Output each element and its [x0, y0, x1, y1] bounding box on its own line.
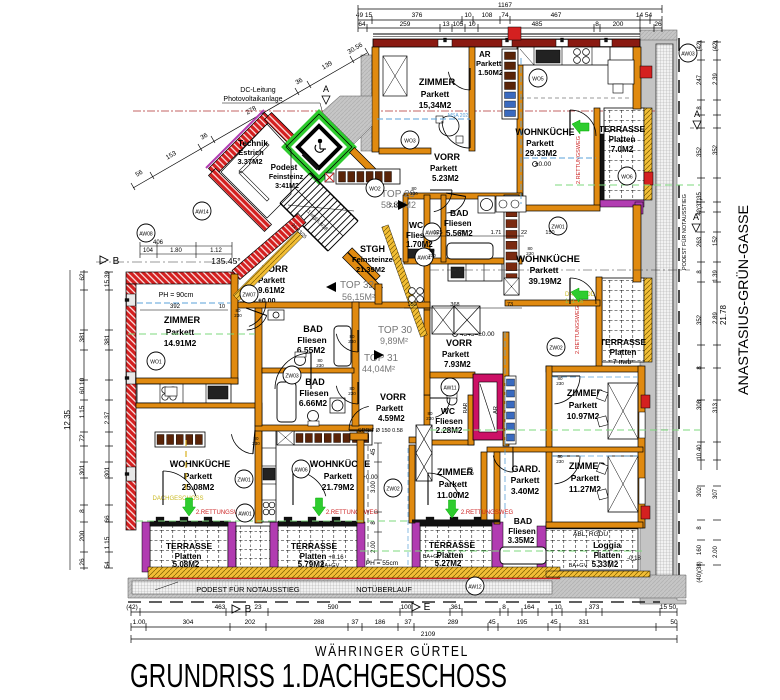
svg-text:TOP 30: TOP 30 [378, 325, 413, 336]
svg-text:Fliesen: Fliesen [444, 219, 472, 228]
svg-text:Podest: Podest [271, 163, 298, 172]
svg-text:GARD.: GARD. [512, 464, 541, 474]
svg-text:BAD: BAD [514, 516, 532, 526]
svg-text:125: 125 [433, 230, 442, 236]
svg-text:10 40: 10 40 [697, 444, 703, 460]
svg-text:Parkett: Parkett [184, 471, 213, 481]
svg-text:TERRASSE: TERRASSE [600, 337, 647, 347]
svg-text:15.39: 15.39 [104, 270, 111, 287]
svg-text:13: 13 [442, 21, 450, 28]
svg-text:1.12: 1.12 [210, 248, 222, 254]
svg-text:200: 200 [613, 21, 624, 28]
svg-text:DC-Leitung: DC-Leitung [240, 87, 276, 94]
svg-text:10: 10 [554, 604, 562, 611]
svg-text:307: 307 [713, 488, 719, 499]
svg-text:Parkett: Parkett [511, 475, 540, 485]
svg-text:37: 37 [404, 619, 412, 626]
svg-text:TERRASSE: TERRASSE [166, 541, 213, 551]
svg-text:Parkett: Parkett [476, 59, 502, 68]
svg-text:230: 230 [556, 381, 564, 386]
svg-text:1.15: 1.15 [79, 405, 86, 418]
svg-text:302: 302 [697, 486, 703, 497]
svg-text:MSA 202: MSA 202 [448, 113, 469, 119]
svg-text:135.45°: 135.45° [211, 256, 240, 266]
svg-text:186: 186 [375, 619, 386, 626]
svg-text:PH = 55cm: PH = 55cm [366, 560, 398, 567]
svg-text:Feinsteinz: Feinsteinz [269, 174, 304, 181]
svg-text:SPRIT Ø 150 0.58: SPRIT Ø 150 0.58 [358, 428, 403, 434]
svg-text:Fliesen: Fliesen [508, 527, 536, 536]
svg-text:352: 352 [697, 146, 703, 157]
svg-text:49 15: 49 15 [356, 12, 373, 19]
svg-text:WO2: WO2 [369, 187, 381, 193]
svg-text:10: 10 [468, 21, 476, 28]
svg-text:Technik: Technik [238, 139, 268, 148]
svg-text:Fliesen: Fliesen [299, 388, 328, 398]
svg-text:ZW07: ZW07 [242, 293, 256, 299]
svg-text:152: 152 [713, 235, 719, 246]
svg-text:10: 10 [219, 304, 225, 310]
svg-text:21.39M2: 21.39M2 [356, 265, 385, 274]
svg-text:ZW03: ZW03 [285, 374, 299, 380]
svg-text:56,15M²: 56,15M² [342, 292, 375, 302]
svg-text:AW14: AW14 [195, 210, 209, 216]
svg-text:23: 23 [254, 604, 262, 611]
svg-text:3.40M2: 3.40M2 [511, 486, 540, 496]
svg-text:352: 352 [713, 144, 719, 155]
svg-text:376: 376 [412, 12, 423, 19]
svg-text:BAD: BAD [450, 208, 468, 218]
svg-text:11.00M2: 11.00M2 [437, 490, 469, 500]
svg-text:ABL. RGDU: ABL. RGDU [573, 531, 608, 538]
svg-text:195: 195 [517, 619, 528, 626]
svg-text:1.39: 1.39 [713, 270, 719, 282]
svg-text:AW01: AW01 [238, 512, 252, 518]
svg-text:WOHNKÜCHE: WOHNKÜCHE [515, 127, 574, 137]
svg-text:230: 230 [348, 391, 356, 396]
svg-text:Fliesen: Fliesen [435, 417, 463, 426]
svg-text:RAR: RAR [463, 402, 469, 413]
svg-text:B: B [113, 256, 120, 267]
svg-text:TOP 32: TOP 32 [340, 280, 375, 291]
svg-text:BAD: BAD [303, 324, 323, 334]
svg-text:463: 463 [215, 604, 226, 611]
svg-text:381: 381 [79, 331, 86, 342]
svg-text:64: 64 [358, 21, 366, 28]
svg-text:72: 72 [79, 434, 86, 442]
svg-text:150: 150 [407, 302, 416, 308]
svg-text:9,89M²: 9,89M² [380, 336, 408, 346]
svg-text:ZW01: ZW01 [237, 478, 251, 484]
svg-text:-0.18: -0.18 [627, 556, 641, 562]
svg-text:AW11: AW11 [443, 386, 456, 392]
svg-text:29.33M2: 29.33M2 [525, 149, 557, 158]
svg-text:BA+GV: BA+GV [569, 563, 588, 569]
svg-text:2.39: 2.39 [713, 73, 719, 85]
svg-text:Parkett: Parkett [166, 327, 195, 337]
svg-text:4.59M2: 4.59M2 [378, 414, 405, 423]
svg-text:ZIMMER: ZIMMER [164, 315, 201, 325]
svg-text:259: 259 [400, 21, 411, 28]
svg-text:A: A [323, 84, 329, 94]
svg-text:A: A [693, 212, 699, 222]
svg-text:ZW02: ZW02 [386, 487, 400, 493]
svg-text:105: 105 [453, 21, 464, 28]
svg-text:8: 8 [595, 21, 599, 28]
svg-text:TERRASSE: TERRASSE [429, 540, 476, 550]
svg-text:100: 100 [401, 604, 412, 611]
svg-text:361: 361 [451, 604, 462, 611]
svg-text:230: 230 [428, 253, 436, 258]
svg-text:3:41M2: 3:41M2 [275, 183, 299, 190]
svg-text:Parkett: Parkett [569, 400, 598, 410]
svg-text:AW06: AW06 [294, 468, 308, 474]
svg-text:590: 590 [328, 604, 339, 611]
svg-text:331: 331 [579, 619, 590, 626]
svg-text:GRUNDRISS 1.DACHGESCHOSS: GRUNDRISS 1.DACHGESCHOSS [130, 657, 507, 694]
svg-text:160: 160 [697, 544, 703, 555]
svg-text:202: 202 [245, 619, 256, 626]
svg-text:Parkett: Parkett [430, 164, 457, 173]
svg-text:5.33M2: 5.33M2 [592, 560, 619, 569]
svg-text:352: 352 [697, 314, 703, 325]
svg-text:25.08M2: 25.08M2 [182, 482, 215, 492]
svg-text:7.93M2: 7.93M2 [444, 360, 471, 369]
svg-text:230: 230 [316, 363, 324, 368]
svg-text:12.35: 12.35 [63, 409, 72, 430]
svg-text:263: 263 [697, 236, 703, 247]
svg-text:37: 37 [351, 619, 359, 626]
svg-text:74: 74 [501, 12, 509, 19]
svg-text:Photovoltaikanlage: Photovoltaikanlage [223, 96, 282, 103]
svg-text:1167: 1167 [498, 2, 512, 9]
svg-text:Parkett: Parkett [421, 89, 450, 99]
svg-text:WC: WC [409, 220, 423, 230]
svg-text:62: 62 [79, 273, 86, 281]
svg-text:Parkett: Parkett [442, 350, 469, 359]
svg-text:B: B [245, 604, 252, 615]
svg-text:2.RETTUNGSWEG: 2.RETTUNGSWEG [576, 136, 582, 184]
svg-text:2.00: 2.00 [713, 546, 719, 558]
svg-text:230: 230 [426, 416, 434, 421]
svg-text:WO5: WO5 [532, 77, 544, 83]
svg-text:7 nwb: 7 nwb [613, 359, 632, 366]
svg-text:DACHGESCHOSS: DACHGESCHOSS [152, 496, 203, 502]
svg-text:WO1: WO1 [150, 360, 162, 366]
svg-text:PODEST FÜR NOTAUSSTIEG: PODEST FÜR NOTAUSSTIEG [196, 585, 300, 594]
svg-text:3.35M2: 3.35M2 [508, 536, 535, 545]
svg-text:8: 8 [502, 604, 506, 611]
svg-text:Parkett: Parkett [376, 404, 403, 413]
svg-text:+0.16: +0.16 [328, 555, 344, 561]
svg-text:+0.00: +0.00 [362, 475, 378, 481]
svg-text:15,34M2: 15,34M2 [419, 100, 452, 110]
svg-text:AW12: AW12 [468, 585, 482, 591]
svg-text:AW08: AW08 [139, 232, 153, 238]
svg-text:230: 230 [348, 339, 356, 344]
svg-text:230: 230 [410, 191, 418, 196]
svg-text:Parkett: Parkett [571, 473, 600, 483]
svg-text:WO6: WO6 [621, 175, 633, 181]
svg-text:1.80: 1.80 [170, 248, 182, 254]
svg-text:AW03: AW03 [681, 52, 695, 58]
svg-text:392: 392 [170, 304, 181, 310]
svg-text:WOHNKÜCHE: WOHNKÜCHE [170, 459, 231, 469]
svg-text:8: 8 [79, 509, 86, 513]
svg-text:10: 10 [464, 12, 472, 19]
svg-text:VORR: VORR [446, 338, 473, 348]
svg-text:14.91M2: 14.91M2 [164, 338, 197, 348]
svg-text:E: E [424, 602, 431, 613]
svg-text:5.23M2: 5.23M2 [432, 174, 459, 183]
svg-text:ANASTASIUS-GRÜN-GASSE: ANASTASIUS-GRÜN-GASSE [736, 205, 751, 395]
svg-text:301: 301 [104, 466, 111, 477]
svg-text:108: 108 [482, 12, 493, 19]
svg-text:485: 485 [532, 21, 543, 28]
svg-text:1.00: 1.00 [133, 619, 146, 626]
svg-text:Platten: Platten [610, 348, 637, 357]
svg-text:406: 406 [153, 240, 164, 246]
svg-text:15 50: 15 50 [660, 604, 677, 611]
svg-text:381: 381 [104, 334, 111, 345]
svg-text:VORR: VORR [434, 152, 461, 162]
svg-text:VORR: VORR [380, 392, 407, 402]
svg-text:2.37: 2.37 [104, 411, 111, 424]
svg-text:A: A [694, 109, 700, 119]
svg-text:288: 288 [314, 619, 325, 626]
svg-text:2.28M2: 2.28M2 [436, 426, 463, 435]
svg-text:164: 164 [524, 604, 535, 611]
svg-text:Platten: Platten [594, 551, 621, 560]
svg-text:Parkett: Parkett [439, 479, 468, 489]
svg-text:1.71: 1.71 [491, 230, 502, 236]
svg-text:26: 26 [79, 558, 86, 566]
svg-text:NOTÜBERLAUF: NOTÜBERLAUF [356, 585, 412, 594]
svg-text:STGH: STGH [360, 244, 385, 254]
svg-text:22: 22 [521, 230, 527, 236]
svg-text:PODEST FÜR NOTAUSSTIEG: PODEST FÜR NOTAUSSTIEG [681, 194, 688, 270]
svg-text:289: 289 [448, 619, 459, 626]
svg-text:121.76: 121.76 [565, 299, 584, 305]
svg-text:Parkett: Parkett [526, 139, 554, 148]
svg-text:BA+GV: BA+GV [423, 554, 442, 560]
svg-text:230: 230 [556, 459, 564, 464]
svg-text:230: 230 [234, 313, 242, 318]
svg-text:ZIMMER: ZIMMER [419, 77, 456, 87]
svg-text:Loggia: Loggia [593, 540, 621, 550]
svg-text:Fliesen: Fliesen [297, 335, 326, 345]
svg-text:313: 313 [713, 402, 719, 413]
svg-text:368: 368 [450, 302, 459, 308]
svg-text:2.RETTUNGSWEG: 2.RETTUNGSWEG [575, 306, 581, 354]
svg-text:66: 66 [104, 515, 111, 523]
svg-text:11.27M2: 11.27M2 [569, 484, 601, 494]
svg-text:200: 200 [79, 530, 86, 541]
svg-text:308: 308 [697, 399, 703, 410]
svg-text:2109: 2109 [421, 631, 436, 638]
svg-text:73: 73 [507, 302, 513, 308]
svg-text:Parkett: Parkett [324, 471, 353, 481]
svg-text:3.37M2: 3.37M2 [237, 157, 262, 166]
svg-text:9.61M2: 9.61M2 [258, 286, 285, 295]
svg-text:301: 301 [79, 464, 86, 475]
svg-text:373: 373 [589, 604, 600, 611]
svg-text:5.27M2: 5.27M2 [435, 559, 462, 568]
svg-text:39.19M2: 39.19M2 [528, 276, 561, 286]
svg-text:(42): (42) [126, 604, 138, 611]
svg-text:BAD: BAD [305, 377, 325, 387]
svg-text:2.RETTUNGSWEG: 2.RETTUNGSWEG [326, 510, 379, 516]
svg-text:247: 247 [697, 74, 703, 85]
svg-text:467: 467 [551, 12, 562, 19]
svg-text:21.79M2: 21.79M2 [322, 482, 355, 492]
svg-text:7.0M2: 7.0M2 [611, 145, 634, 154]
svg-text:45: 45 [550, 619, 558, 626]
svg-text:230: 230 [526, 251, 534, 256]
svg-text:150: 150 [545, 230, 554, 236]
svg-text:WO3: WO3 [404, 139, 416, 145]
svg-text:6.66M2: 6.66M2 [299, 398, 328, 408]
svg-text:45: 45 [371, 448, 377, 455]
svg-text:AR: AR [479, 50, 491, 59]
svg-text:2.RETTUNGSWEG: 2.RETTUNGSWEG [461, 510, 514, 516]
svg-text:AR: AR [493, 406, 499, 414]
svg-text:TERRASSE: TERRASSE [599, 124, 646, 134]
svg-text:2.10: 2.10 [389, 203, 399, 209]
svg-text:20: 20 [459, 230, 465, 236]
svg-text:1.50M2: 1.50M2 [478, 68, 503, 77]
svg-text:45: 45 [488, 619, 496, 626]
svg-text:44,04M²: 44,04M² [362, 364, 395, 374]
svg-text:104: 104 [143, 248, 154, 254]
svg-text:304: 304 [183, 619, 194, 626]
svg-text:1.15: 1.15 [104, 536, 111, 549]
svg-text:(40)(38): (40)(38) [697, 561, 703, 582]
svg-text:10.97M2: 10.97M2 [567, 411, 600, 421]
svg-text:Parkett: Parkett [530, 265, 559, 275]
svg-text:ZW02: ZW02 [549, 346, 563, 352]
svg-text:230: 230 [466, 471, 474, 476]
svg-text:26: 26 [654, 21, 662, 28]
svg-text:TERRASSE: TERRASSE [291, 541, 338, 551]
svg-text:54: 54 [104, 561, 111, 569]
svg-text:230: 230 [252, 441, 260, 446]
svg-text:21.78: 21.78 [719, 304, 728, 325]
svg-text:Platten: Platten [609, 135, 636, 144]
svg-text:PH = 90cm: PH = 90cm [159, 292, 194, 299]
svg-text:3.00: 3.00 [371, 481, 377, 493]
